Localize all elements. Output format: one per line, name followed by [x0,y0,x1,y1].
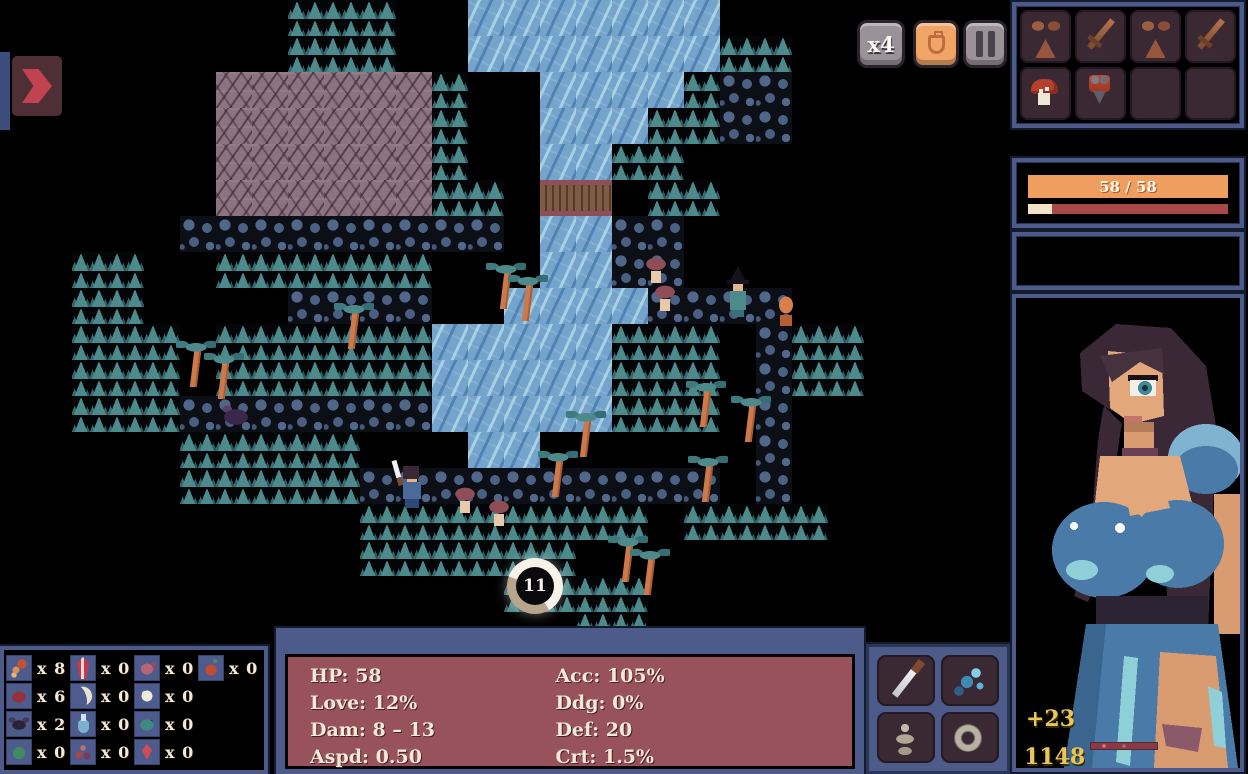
tile-mountain [252,180,288,216]
resource-meat: x 6 [6,682,70,710]
witch-enemy[interactable] [723,266,753,318]
tile-water [576,252,612,288]
equip-slot-bikini-armor[interactable] [1130,10,1181,63]
tile-water [540,72,576,108]
resource-count: x 8 [37,659,66,678]
resource-count: x 6 [37,687,66,706]
xp-bar-fill [1028,204,1052,214]
mushroom-enemy[interactable] [650,282,680,316]
stat-acc: Acc: 105% [555,663,852,690]
tile-water [576,0,612,36]
tile-water [576,72,612,108]
tile-trees [828,360,864,396]
tile-water [648,0,684,36]
tile-mountain [252,144,288,180]
tile-mountain [288,108,324,144]
stats-col-left: HP: 58Love: 12%Dam: 8 – 13Aspd: 0.50 [288,657,547,766]
tile-mountain [324,72,360,108]
resource-tentacle: x 8 [6,654,70,682]
mushroom-enemy[interactable] [484,497,514,531]
tile-path [612,216,648,252]
tile-trees [108,252,144,288]
flask-icon [70,711,96,737]
tile-trees [180,432,216,468]
resource-fruit: x 0 [198,654,262,682]
action-skeleton[interactable] [877,712,935,763]
xp-bar [1028,204,1228,214]
tile-trees [612,360,648,396]
tile-mountain [252,72,288,108]
tile-trees [180,468,216,504]
mushroom-icon [1025,72,1066,115]
tile-trees [612,396,648,432]
tile-path [396,288,432,324]
tile-trees [648,180,684,216]
palm-tree [540,448,576,500]
corset-icon [1080,72,1121,115]
coin-bag-button[interactable] [913,20,959,68]
resource-gem: x 0 [134,738,198,766]
character-portrait [1016,298,1240,768]
tile-water [540,108,576,144]
sprout-icon [6,739,32,765]
tile-water [432,360,468,396]
mini-progress-bar [1090,742,1158,750]
tile-trees [612,144,648,180]
resource-row: x 2x 0x 0 [6,710,262,738]
tile-trees [360,504,396,540]
equipment-grid [1020,10,1236,120]
gem-icon [134,739,160,765]
equipment-panel [1012,2,1244,128]
tile-mountain [216,180,252,216]
speed-button[interactable]: x4 [857,20,905,68]
tentacle-icon [6,655,32,681]
tile-mountain [216,144,252,180]
tile-path [756,108,792,144]
tile-trees [684,324,720,360]
stats-col-right: Acc: 105%Ddg: 0%Def: 20Crt: 1.5% [547,657,852,766]
tile-mountain [396,72,432,108]
tile-trees [432,540,468,576]
tile-trees [432,72,468,108]
tile-trees [396,540,432,576]
tile-mountain [324,108,360,144]
wave-timer-value: 11 [516,567,554,605]
tile-trees [288,36,324,72]
resource-count: x 0 [37,743,66,762]
hp-bar: 58 / 58 [1028,175,1228,198]
tile-water [540,324,576,360]
tile-trees [288,432,324,468]
expand-sidebar-button[interactable] [12,56,62,116]
tile-trees [252,324,288,360]
tile-water [576,36,612,72]
tile-water [684,0,720,36]
tile-trees [72,396,108,432]
resource-count: x 0 [165,659,194,678]
tile-path [756,360,792,396]
tile-path [468,216,504,252]
tile-water [612,0,648,36]
coin-bag-icon [928,35,945,54]
tile-path [288,216,324,252]
equip-slot-bikini-armor[interactable] [1020,10,1071,63]
tile-water [612,36,648,72]
tile-trees [108,288,144,324]
tusk-icon [70,683,96,709]
equip-slot-empty[interactable] [1185,67,1236,120]
tile-trees [108,396,144,432]
tile-trees [72,324,108,360]
tile-water [504,396,540,432]
tile-bridge [540,180,576,216]
tile-trees [288,252,324,288]
tile-path [360,396,396,432]
pause-button[interactable] [963,20,1007,68]
tile-water [612,288,648,324]
tile-water [468,0,504,36]
tile-water [576,360,612,396]
tile-mountain [360,108,396,144]
resource-count: x 0 [101,687,130,706]
hero[interactable] [394,464,430,512]
tile-trees [684,72,720,108]
resource-bat: x 2 [6,710,70,738]
tile-mountain [252,108,288,144]
tile-water [432,324,468,360]
sword-icon [1190,15,1231,58]
fruit-icon [198,655,224,681]
stat-love: Love: 12% [310,690,547,717]
resource-count: x 0 [165,687,194,706]
resource-berries: x 0 [70,738,134,766]
palm-tree [510,272,546,324]
resources-panel: x 8x 0x 0x 0x 6x 0x 0x 2x 0x 0x 0x 0x 0 [0,646,268,774]
tile-mountain [360,180,396,216]
bat-icon [6,711,32,737]
tile-trees [648,108,684,144]
info-panel [1012,232,1244,290]
palm-tree [336,300,372,352]
resource-flask: x 0 [70,710,134,738]
mushroom-enemy[interactable] [450,484,480,518]
tile-trees [360,360,396,396]
tile-trees [648,324,684,360]
tile-water [612,108,648,144]
tile-trees [252,432,288,468]
tile-water [504,0,540,36]
tile-path [324,216,360,252]
skeleton-icon [885,720,927,755]
arrow-right-icon [22,69,52,103]
tile-water [504,36,540,72]
tile-mountain [396,108,432,144]
tile-water [540,0,576,36]
tile-path [432,216,468,252]
tile-water [540,216,576,252]
tile-trees [792,360,828,396]
game-screen: x4 11 58 / 58 [0,0,1248,774]
tile-path [252,216,288,252]
resource-count: x 0 [101,743,130,762]
tile-mountain [324,144,360,180]
tile-trees [288,360,324,396]
actions-panel [866,644,1010,774]
crystal-icon [70,655,96,681]
tile-trees [324,0,360,36]
tile-mountain [288,180,324,216]
tile-trees [432,108,468,144]
tile-trees [396,252,432,288]
gold-total: 1148 [1024,744,1085,770]
tile-trees [324,252,360,288]
tile-mountain [396,180,432,216]
equip-slot-corset[interactable] [1075,67,1126,120]
pause-icon [976,31,983,57]
tile-trees [396,360,432,396]
tile-path [612,468,648,504]
tile-water [684,36,720,72]
tile-water [540,144,576,180]
tile-trees [720,36,756,72]
tile-trees [216,468,252,504]
resource-count: x 2 [37,715,66,734]
tile-mountain [288,72,324,108]
palm-tree [688,378,724,430]
creature-icon [949,663,991,698]
tile-path [288,396,324,432]
tile-path [396,216,432,252]
equip-slot-sword[interactable] [1075,10,1126,63]
resource-tusk: x 0 [70,682,134,710]
resource-pearl: x 0 [134,682,198,710]
tile-water [468,36,504,72]
tile-mountain [324,180,360,216]
tile-trees [360,0,396,36]
ring-icon [949,720,991,755]
tile-water [648,72,684,108]
tile-trees [324,36,360,72]
tile-trees [324,432,360,468]
tile-trees [252,360,288,396]
gold-gain: +23 [1026,706,1075,732]
tile-mountain [360,144,396,180]
tile-mountain [288,144,324,180]
bikini-armor-icon [1025,15,1066,58]
left-edge-strip [0,52,10,130]
tile-trees [324,468,360,504]
tile-path [756,468,792,504]
tile-water [612,72,648,108]
tile-water [504,324,540,360]
dagger-icon [885,663,927,698]
tile-trees [612,324,648,360]
tile-trees [792,504,828,540]
portrait-panel: +23 1148 [1012,294,1244,772]
tile-water [504,432,540,468]
shell-icon [134,655,160,681]
tile-water [540,36,576,72]
tile-trees [576,576,612,612]
resource-count: x 0 [101,659,130,678]
tile-water [468,396,504,432]
tile-water [540,360,576,396]
tile-path [324,396,360,432]
tile-mountain [216,108,252,144]
palm-tree [206,350,242,402]
tile-path [252,396,288,432]
tile-path [756,72,792,108]
palm-tree [733,393,769,445]
resource-shell: x 0 [134,654,198,682]
tile-trees [288,0,324,36]
tile-water [504,360,540,396]
tile-trees [72,360,108,396]
action-creature[interactable] [941,655,999,706]
tile-trees [144,324,180,360]
tile-trees [144,360,180,396]
action-dagger[interactable] [877,655,935,706]
action-grid [877,655,999,763]
resource-count: x 0 [165,715,194,734]
tile-trees [648,396,684,432]
tile-trees [468,540,504,576]
tile-water [576,144,612,180]
resource-grid: x 8x 0x 0x 0x 6x 0x 0x 2x 0x 0x 0x 0x 0 [6,654,262,766]
tile-water [432,396,468,432]
palm-tree [632,546,668,598]
resource-row: x 8x 0x 0x 0 [6,654,262,682]
stat-crt: Crt: 1.5% [555,744,852,771]
tile-path [648,216,684,252]
action-ring[interactable] [941,712,999,763]
tile-trees [108,324,144,360]
tile-trees [648,360,684,396]
tile-mountain [396,144,432,180]
equip-slot-sword[interactable] [1185,10,1236,63]
tile-trees [252,468,288,504]
tile-water [576,324,612,360]
tile-trees [360,252,396,288]
tile-trees [288,468,324,504]
tile-water [576,108,612,144]
tile-trees [72,252,108,288]
sword-icon [1080,15,1121,58]
tile-trees [360,540,396,576]
stat-def: Def: 20 [555,717,852,744]
resource-row: x 6x 0x 0 [6,682,262,710]
tile-trees [684,180,720,216]
tile-bridge [576,180,612,216]
tile-trees [540,504,576,540]
tile-water [576,216,612,252]
resource-count: x 0 [229,659,258,678]
tile-water [468,360,504,396]
resource-count: x 0 [165,743,194,762]
equip-slot-mushroom[interactable] [1020,67,1071,120]
tile-water [468,432,504,468]
tile-trees [216,252,252,288]
tile-trees [684,504,720,540]
tile-trees [828,324,864,360]
resource-fish: x 0 [134,710,198,738]
tile-path [720,108,756,144]
tile-water [576,288,612,324]
stat-aspd: Aspd: 0.50 [310,744,547,771]
resource-sprout: x 0 [6,738,70,766]
tile-water [648,36,684,72]
hp-panel: 58 / 58 [1012,158,1244,228]
tile-trees [144,396,180,432]
fish-icon [134,711,160,737]
resource-count: x 0 [101,715,130,734]
pearl-icon [134,683,160,709]
tile-path [288,288,324,324]
tile-trees [756,504,792,540]
tile-water [468,324,504,360]
stat-ddg: Ddg: 0% [555,690,852,717]
tile-trees [216,432,252,468]
tile-trees [360,36,396,72]
tile-path [216,216,252,252]
imp-enemy[interactable] [773,292,799,330]
shadow-enemy[interactable] [216,400,256,432]
tile-mountain [360,72,396,108]
wave-timer: 11 [507,558,563,614]
tile-path [360,216,396,252]
tile-path [360,468,396,504]
equip-slot-empty[interactable] [1130,67,1181,120]
tile-path [720,72,756,108]
tile-trees [432,180,468,216]
tile-trees [396,324,432,360]
tile-trees [72,288,108,324]
bikini-armor-icon [1135,15,1176,58]
tile-trees [324,360,360,396]
resource-crystal: x 0 [70,654,134,682]
tile-trees [648,144,684,180]
stats-panel: HP: 58Love: 12%Dam: 8 – 13Aspd: 0.50 Acc… [276,628,864,774]
resource-row: x 0x 0x 0 [6,738,262,766]
tile-trees [108,360,144,396]
tile-mountain [216,72,252,108]
right-sidebar: 58 / 58 [1010,0,1248,774]
tile-trees [468,180,504,216]
tile-path [576,468,612,504]
tile-path [396,396,432,432]
tile-trees [288,324,324,360]
stat-hp: HP: 58 [310,663,547,690]
tile-trees [576,504,612,540]
tile-trees [756,36,792,72]
tile-trees [432,144,468,180]
stats-inner: HP: 58Love: 12%Dam: 8 – 13Aspd: 0.50 Acc… [285,654,855,769]
tile-trees [684,108,720,144]
berries-icon [70,739,96,765]
tile-trees [252,252,288,288]
stat-dam: Dam: 8 – 13 [310,717,547,744]
tile-path [648,468,684,504]
tile-path [180,216,216,252]
tile-trees [720,504,756,540]
palm-tree [690,453,726,505]
tile-path [684,288,720,324]
meat-icon [6,683,32,709]
